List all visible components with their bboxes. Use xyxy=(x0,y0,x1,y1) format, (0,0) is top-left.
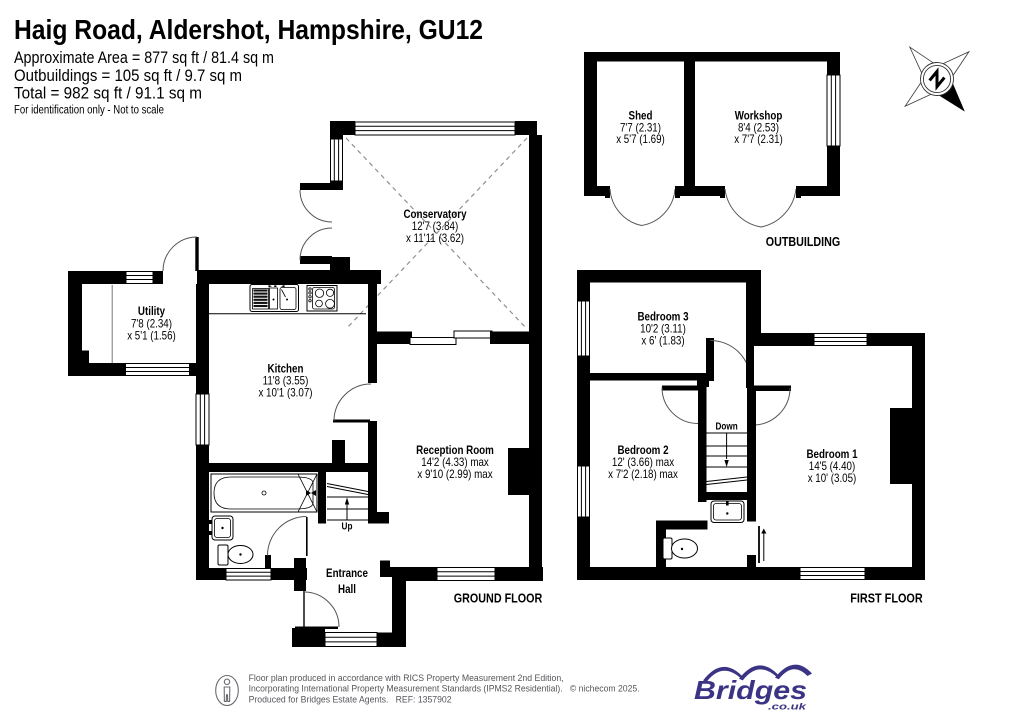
svg-text:Entrance: Entrance xyxy=(326,566,368,580)
svg-text:Produced for Bridges Estate Ag: Produced for Bridges Estate Agents. REF:… xyxy=(249,694,452,704)
svg-text:x 5'1 (1.56): x 5'1 (1.56) xyxy=(127,329,176,343)
svg-text:For identification only - Not: For identification only - Not to scale xyxy=(14,105,164,117)
svg-text:Floor plan produced in accorda: Floor plan produced in accordance with R… xyxy=(249,673,564,683)
svg-text:.co.uk: .co.uk xyxy=(768,702,807,713)
svg-text:x 10' (3.05): x 10' (3.05) xyxy=(808,471,857,485)
svg-text:Bridges: Bridges xyxy=(694,675,807,705)
svg-text:x 11'11 (3.62): x 11'11 (3.62) xyxy=(406,231,464,245)
svg-text:Total = 982 sq ft / 91.1 sq m: Total = 982 sq ft / 91.1 sq m xyxy=(14,85,202,103)
svg-text:x 10'1 (3.07): x 10'1 (3.07) xyxy=(258,386,312,400)
svg-text:Up: Up xyxy=(342,522,353,533)
svg-text:x 7'2 (2.18) max: x 7'2 (2.18) max xyxy=(608,467,678,481)
svg-text:Incorporating International Pr: Incorporating International Property Mea… xyxy=(249,684,640,694)
svg-text:Approximate Area = 877 sq ft /: Approximate Area = 877 sq ft / 81.4 sq m xyxy=(14,49,274,67)
svg-text:OUTBUILDING: OUTBUILDING xyxy=(766,234,841,249)
svg-text:x 7'7 (2.31): x 7'7 (2.31) xyxy=(734,132,783,146)
svg-text:x 6' (1.83): x 6' (1.83) xyxy=(641,334,684,348)
svg-text:Haig Road, Aldershot, Hampshir: Haig Road, Aldershot, Hampshire, GU12 xyxy=(14,14,483,45)
svg-text:FIRST FLOOR: FIRST FLOOR xyxy=(850,591,923,606)
svg-text:Hall: Hall xyxy=(338,582,356,596)
svg-text:GROUND FLOOR: GROUND FLOOR xyxy=(454,591,543,606)
svg-text:x 5'7 (1.69): x 5'7 (1.69) xyxy=(616,132,665,146)
svg-text:Down: Down xyxy=(716,422,738,433)
svg-text:x 9'10 (2.99) max: x 9'10 (2.99) max xyxy=(417,467,492,481)
svg-text:Outbuildings = 105 sq ft / 9.7: Outbuildings = 105 sq ft / 9.7 sq m xyxy=(14,67,242,85)
